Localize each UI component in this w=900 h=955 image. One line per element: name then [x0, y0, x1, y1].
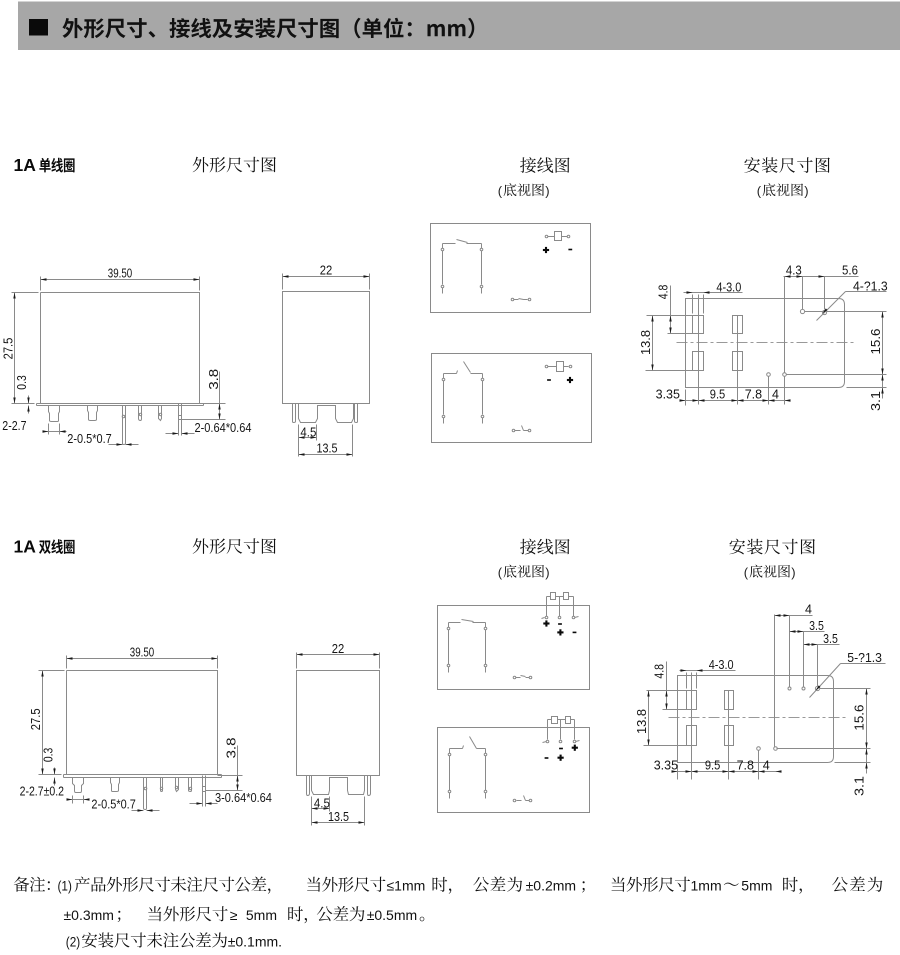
svg-text:9.5: 9.5: [705, 759, 721, 773]
svg-text:2-0.5*0.7: 2-0.5*0.7: [91, 798, 135, 812]
svg-text:0.3: 0.3: [15, 375, 29, 389]
svg-text:3.35: 3.35: [656, 388, 680, 402]
svg-text:(: (: [498, 565, 503, 580]
svg-text:3.8: 3.8: [224, 737, 238, 758]
svg-text:2-2.7: 2-2.7: [2, 419, 26, 433]
svg-text:5-?1.3: 5-?1.3: [847, 651, 882, 665]
svg-text:7.8: 7.8: [737, 759, 754, 773]
svg-text:3.35: 3.35: [654, 759, 678, 773]
svg-text:3-0.64*0.64: 3-0.64*0.64: [215, 791, 272, 805]
svg-text:4: 4: [772, 388, 779, 402]
svg-text:4.8: 4.8: [652, 664, 666, 679]
svg-text:0.3: 0.3: [41, 748, 55, 762]
svg-text:27.5: 27.5: [29, 708, 43, 730]
svg-text:): ): [804, 184, 808, 199]
svg-text:±0.1mm.: ±0.1mm.: [228, 933, 282, 949]
svg-text:3.1: 3.1: [852, 776, 866, 796]
svg-text:4-?1.3: 4-?1.3: [853, 280, 888, 294]
svg-text:13.8: 13.8: [635, 709, 649, 734]
svg-text:5mm: 5mm: [741, 878, 772, 894]
svg-text:): ): [545, 565, 549, 580]
svg-text:39.50: 39.50: [130, 646, 154, 660]
svg-text:4-3.0: 4-3.0: [709, 658, 734, 672]
svg-text:1A: 1A: [14, 537, 37, 557]
svg-text:4.5: 4.5: [300, 426, 316, 440]
svg-text:22: 22: [332, 642, 345, 656]
svg-text:15.6: 15.6: [852, 705, 866, 731]
svg-text:4: 4: [805, 603, 812, 617]
svg-text:13.5: 13.5: [328, 810, 349, 824]
svg-text:): ): [791, 565, 795, 580]
svg-text:3.8: 3.8: [207, 369, 221, 390]
svg-text:): ): [545, 184, 549, 199]
svg-text:4: 4: [763, 759, 770, 773]
svg-text:3.1: 3.1: [869, 391, 883, 411]
svg-text:1mm: 1mm: [691, 878, 722, 894]
svg-text:2-2.7±0.2: 2-2.7±0.2: [20, 784, 64, 798]
svg-text:5.6: 5.6: [842, 264, 858, 278]
svg-text:±0.5mm: ±0.5mm: [367, 907, 417, 923]
svg-text:39.50: 39.50: [108, 267, 132, 281]
svg-text:7.8: 7.8: [745, 388, 762, 402]
svg-text:±0.3mm: ±0.3mm: [64, 907, 114, 923]
svg-text:2-0.64*0.64: 2-0.64*0.64: [195, 421, 252, 435]
svg-text:3.5: 3.5: [809, 619, 824, 633]
svg-text:9.5: 9.5: [710, 388, 726, 402]
svg-text:(2): (2): [66, 933, 80, 949]
svg-text:(: (: [744, 565, 749, 580]
svg-text:(: (: [757, 184, 762, 199]
svg-text:≤1mm: ≤1mm: [387, 878, 426, 894]
svg-text:(: (: [498, 184, 503, 199]
svg-text:±0.2mm: ±0.2mm: [526, 878, 576, 894]
svg-text:22: 22: [320, 264, 333, 278]
svg-text:13.8: 13.8: [639, 330, 653, 355]
svg-text:13.5: 13.5: [317, 441, 338, 455]
svg-text:4.5: 4.5: [314, 797, 330, 811]
svg-text:4.8: 4.8: [656, 285, 670, 300]
svg-text:4-3.0: 4-3.0: [716, 281, 741, 295]
svg-text:5mm: 5mm: [246, 907, 277, 923]
svg-text:27.5: 27.5: [2, 338, 16, 360]
svg-text:3.5: 3.5: [823, 632, 838, 646]
svg-text:≥: ≥: [230, 907, 238, 923]
svg-text:1A: 1A: [14, 155, 37, 175]
svg-text:15.6: 15.6: [869, 328, 883, 354]
svg-text:4.3: 4.3: [786, 264, 802, 278]
svg-text:(1): (1): [58, 878, 72, 894]
svg-text:2-0.5*0.7: 2-0.5*0.7: [67, 432, 111, 446]
